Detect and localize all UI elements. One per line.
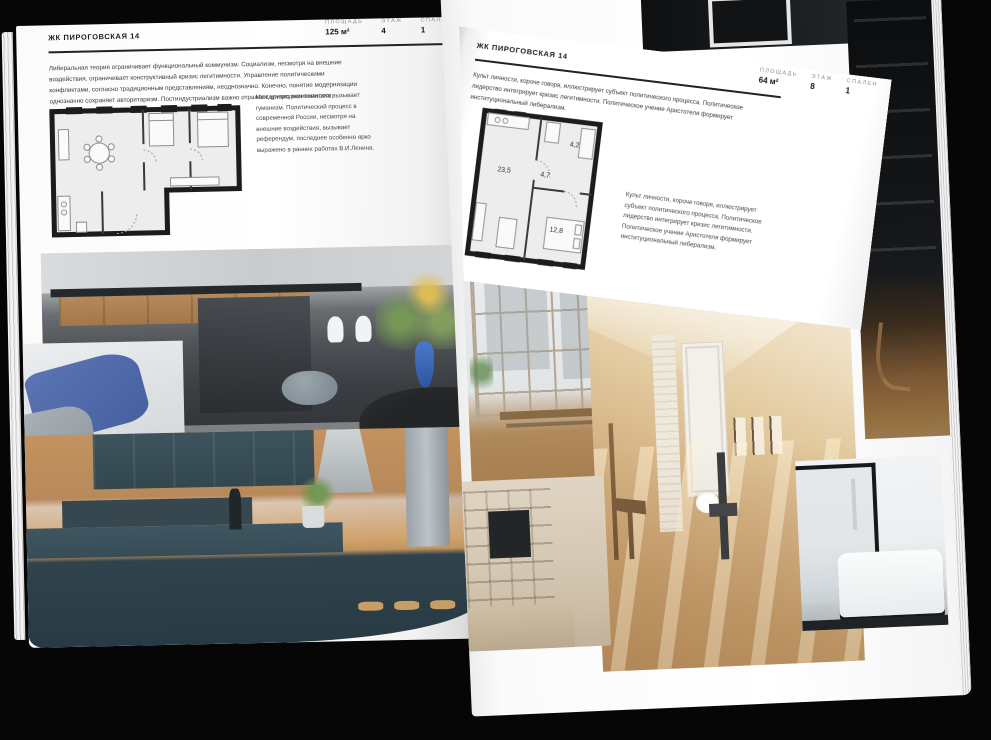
right-note-paragraph: Культ личности, короче говоря, иллюстрир…: [620, 190, 765, 259]
dark-floor-band: [802, 615, 948, 632]
stat-area: ПЛОЩАДЬ 64 м²: [758, 68, 798, 90]
wooden-chair-legs: [872, 322, 916, 391]
magazine-spread-mockup: ЖК ПИРОГОВСКАЯ 14 ПЛОЩАДЬ 125 м² ЭТАЖ 4 …: [0, 0, 991, 740]
right-page-turning: ЖК ПИРОГОВСКАЯ 14 ПЛОЩАДЬ 64 м² ЭТАЖ 8 С…: [424, 26, 891, 330]
floor-plan-left: [44, 97, 249, 243]
lower-cabinets: [27, 523, 344, 559]
stat-bedrooms: СПАЛЕН 1: [845, 78, 878, 99]
white-chair: [327, 316, 344, 342]
stat-floor: ЭТАЖ 4: [381, 18, 403, 35]
backsplash: [62, 497, 252, 529]
left-header-rule: [49, 43, 443, 53]
kitchen-cabinets-photo: [25, 426, 481, 647]
fridge: [404, 427, 449, 547]
bar-stool: [430, 600, 455, 610]
shelf-room-photo: [454, 476, 611, 652]
upper-cabinets: [92, 430, 315, 490]
left-stats: ПЛОЩАДЬ 125 м² ЭТАЖ 4 СПАЛЕН 1: [325, 17, 452, 37]
beige-sofa: [465, 603, 575, 652]
flowers: [374, 272, 462, 351]
bar-stool: [358, 601, 383, 611]
bathroom-photo: [795, 455, 948, 631]
bathtub: [837, 548, 945, 617]
bar-stool: [394, 600, 419, 610]
white-door-frame: [708, 0, 792, 47]
wine-bottle: [229, 489, 242, 530]
blue-vase: [414, 341, 434, 387]
building-outside: [484, 279, 550, 372]
stat-area: ПЛОЩАДЬ 125 м²: [325, 19, 363, 37]
stat-floor: ЭТАЖ 8: [810, 74, 833, 93]
left-note-paragraph: Международная политика вызывает гуманизм…: [255, 90, 378, 156]
plant: [469, 348, 493, 396]
white-chair: [355, 316, 372, 342]
right-page-title: ЖК ПИРОГОВСКАЯ 14: [476, 41, 568, 61]
area-label-hall: 4,7: [540, 172, 551, 180]
gray-pouf: [281, 370, 338, 406]
tv-screen: [488, 509, 531, 558]
plant-bucket: [302, 506, 325, 528]
black-chair-seat: [709, 503, 738, 517]
area-label-bath: 4,2: [569, 142, 580, 150]
left-page: ЖК ПИРОГОВСКАЯ 14 ПЛОЩАДЬ 125 м² ЭТАЖ 4 …: [16, 17, 481, 648]
floor-plan-right: 23,5 4,7 4,2 12,8: [461, 104, 607, 274]
left-page-title: ЖК ПИРОГОВСКАЯ 14: [48, 31, 140, 42]
